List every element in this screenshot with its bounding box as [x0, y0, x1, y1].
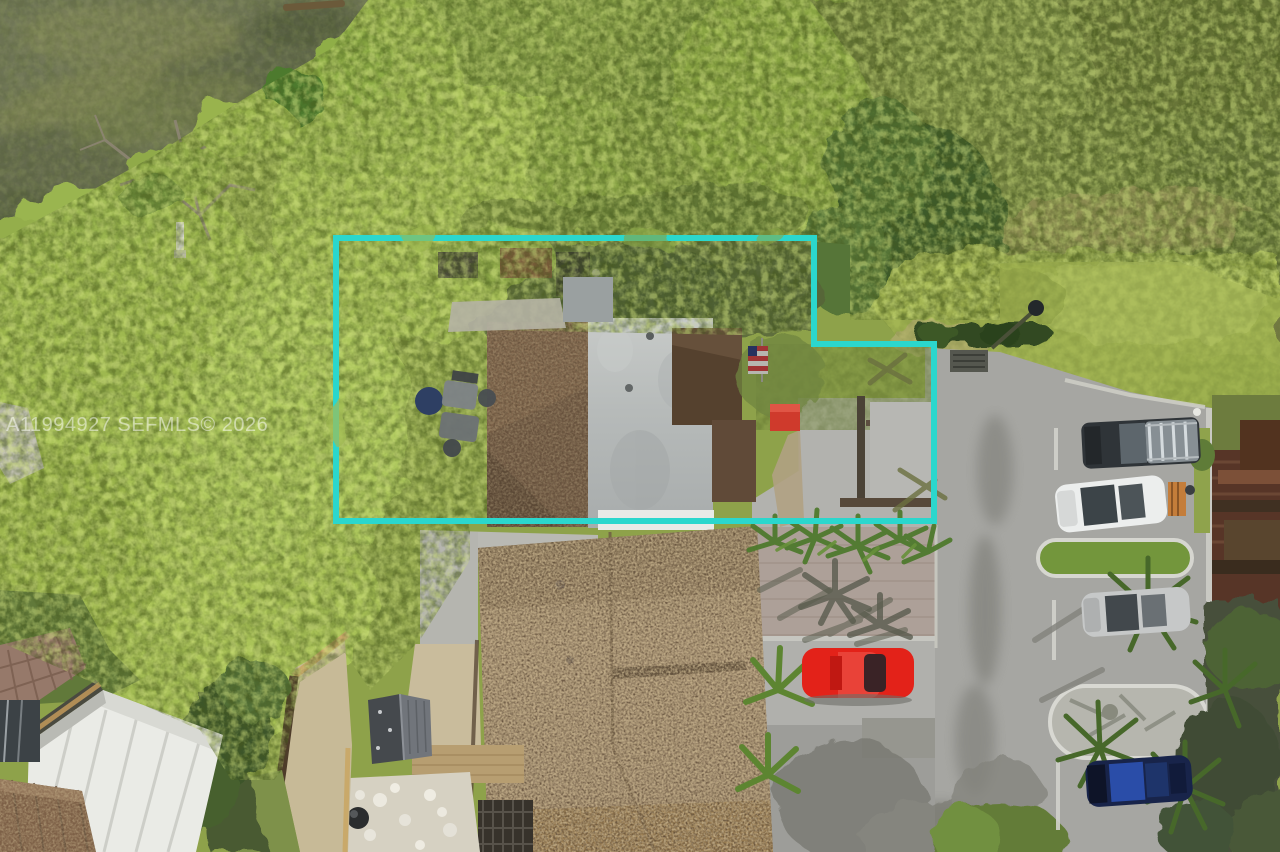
- svg-text:A11994927 SEFMLS© 2026: A11994927 SEFMLS© 2026: [6, 414, 268, 436]
